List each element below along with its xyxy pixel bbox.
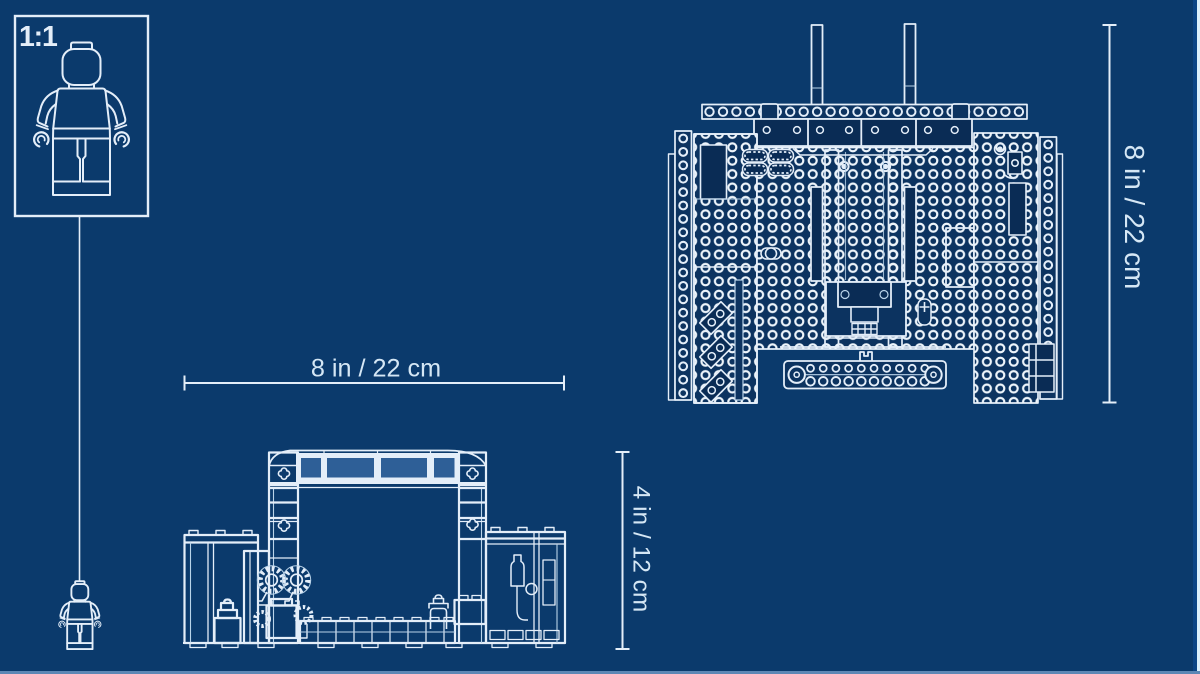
svg-text:8 in / 22 cm: 8 in / 22 cm: [311, 355, 441, 383]
svg-text:1:1: 1:1: [19, 21, 58, 53]
svg-text:4 in / 12 cm: 4 in / 12 cm: [628, 486, 655, 613]
svg-text:8 in / 22 cm: 8 in / 22 cm: [1119, 145, 1150, 290]
